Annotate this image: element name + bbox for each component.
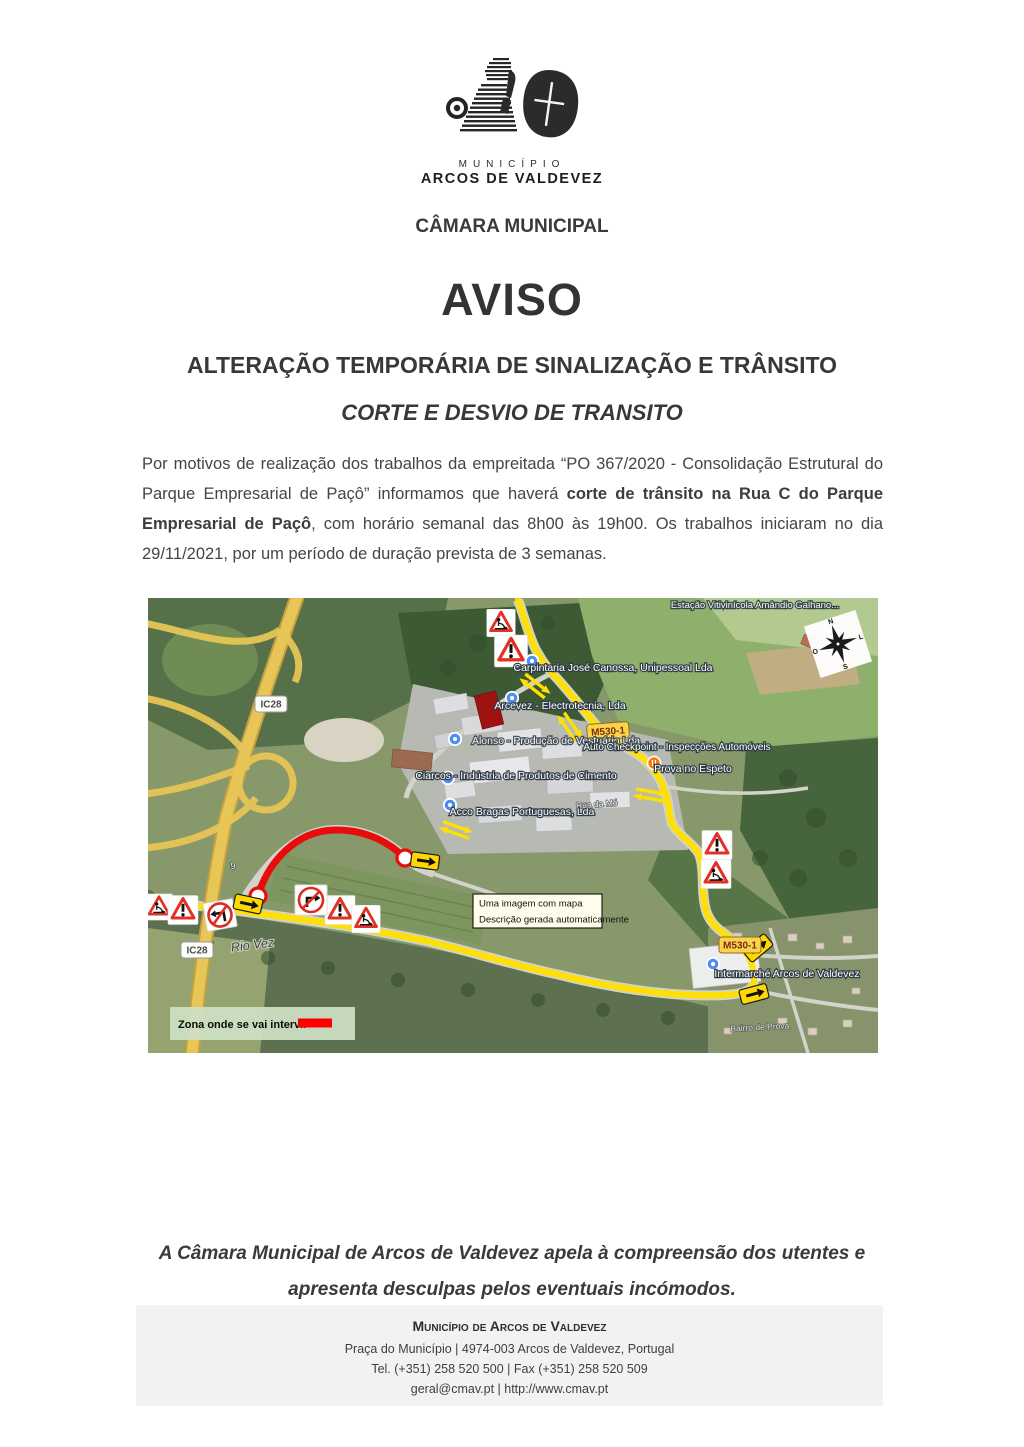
closing-line1: A Câmara Municipal de Arcos de Valdevez …	[0, 1236, 1024, 1272]
org-heading: CÂMARA MUNICIPAL	[0, 216, 1024, 238]
map-figure: IC28 IC28 M530-1 M530-1	[148, 598, 878, 1053]
label-estacao: Estação Vitivinícola Amândio Galhano...	[671, 600, 839, 611]
svg-text:M530-1: M530-1	[723, 941, 757, 952]
footer-address: Praça do Município | 4974-003 Arcos de V…	[136, 1339, 883, 1359]
page-title: AVISO	[0, 274, 1024, 326]
label-intermarche: Intermarché Arcos de Valdevez	[714, 968, 859, 980]
alt-text-line1: Uma imagem com mapa	[479, 899, 583, 910]
roadworks-sign	[352, 905, 381, 933]
no-right-turn-sign	[203, 899, 237, 932]
label-acco: Acco Bragas Portuguesas, Lda	[450, 806, 595, 818]
logo-circle-dot	[454, 105, 460, 111]
svg-text:IC28: IC28	[260, 700, 282, 711]
warning-sign	[325, 896, 355, 925]
label-autocheck: Auto Checkpoint - Inspecções Automóveis	[583, 742, 770, 753]
poi-pin	[449, 733, 461, 745]
closing-line2: apresenta desculpas pelos eventuais incó…	[0, 1272, 1024, 1308]
footer-title: Município de Arcos de Valdevez	[136, 1318, 883, 1334]
closing-statement: A Câmara Municipal de Arcos de Valdevez …	[0, 1236, 1024, 1308]
logo-shield	[519, 67, 583, 141]
subtitle-signal-change: ALTERAÇÃO TEMPORÁRIA DE SINALIZAÇÃO E TR…	[0, 352, 1024, 379]
logo-block: MUNICÍPIO ARCOS DE VALDEVEZ	[0, 56, 1024, 187]
footer-block: Município de Arcos de Valdevez Praça do …	[136, 1305, 883, 1406]
logo-municipio-word: MUNICÍPIO	[0, 159, 1024, 170]
no-left-turn-sign	[295, 885, 327, 915]
alt-text-line2: Descrição gerada automaticamente	[479, 915, 629, 926]
label-prova: Prova no Espeto	[654, 763, 732, 775]
warning-sign	[168, 896, 198, 925]
footer-web: geral@cmav.pt | http://www.cmav.pt	[136, 1379, 883, 1399]
logo-municipality-name: ARCOS DE VALDEVEZ	[0, 171, 1024, 187]
label-ciarcos: Ciarcos - Indústria de Produtos de Cimen…	[415, 770, 617, 782]
footer-phones: Tel. (+351) 258 520 500 | Fax (+351) 258…	[136, 1359, 883, 1379]
municipality-logo-icon	[423, 56, 601, 152]
m530-badge: M530-1	[719, 937, 761, 953]
roadworks-sign	[701, 860, 731, 889]
svg-text:IC28: IC28	[186, 946, 208, 957]
logo-knight-stripes	[460, 58, 517, 131]
ic28-badge: IC28	[181, 942, 213, 958]
map-legend: Zona onde se vai intervir	[170, 1007, 355, 1040]
label-carpintaria: Carpintaria José Canossa, Unipessoal Lda	[513, 662, 712, 674]
label-arcevez: Arcevez - Electrotecnia, Lda	[494, 700, 625, 712]
warning-sign	[702, 831, 732, 860]
notice-document: MUNICÍPIO ARCOS DE VALDEVEZ CÂMARA MUNIC…	[0, 0, 1024, 1447]
map-image: IC28 IC28 M530-1 M530-1	[148, 598, 878, 1053]
direction-arrow-sign	[410, 852, 440, 871]
legend-swatch	[298, 1019, 332, 1028]
km-label: 9	[230, 861, 235, 871]
legend-label: Zona onde se vai intervir	[178, 1019, 308, 1031]
subtitle-road-closure: CORTE E DESVIO DE TRANSITO	[0, 400, 1024, 426]
notice-paragraph: Por motivos de realização dos trabalhos …	[142, 449, 883, 569]
ic28-badge: IC28	[255, 696, 287, 712]
roadworks-sign	[487, 609, 516, 637]
